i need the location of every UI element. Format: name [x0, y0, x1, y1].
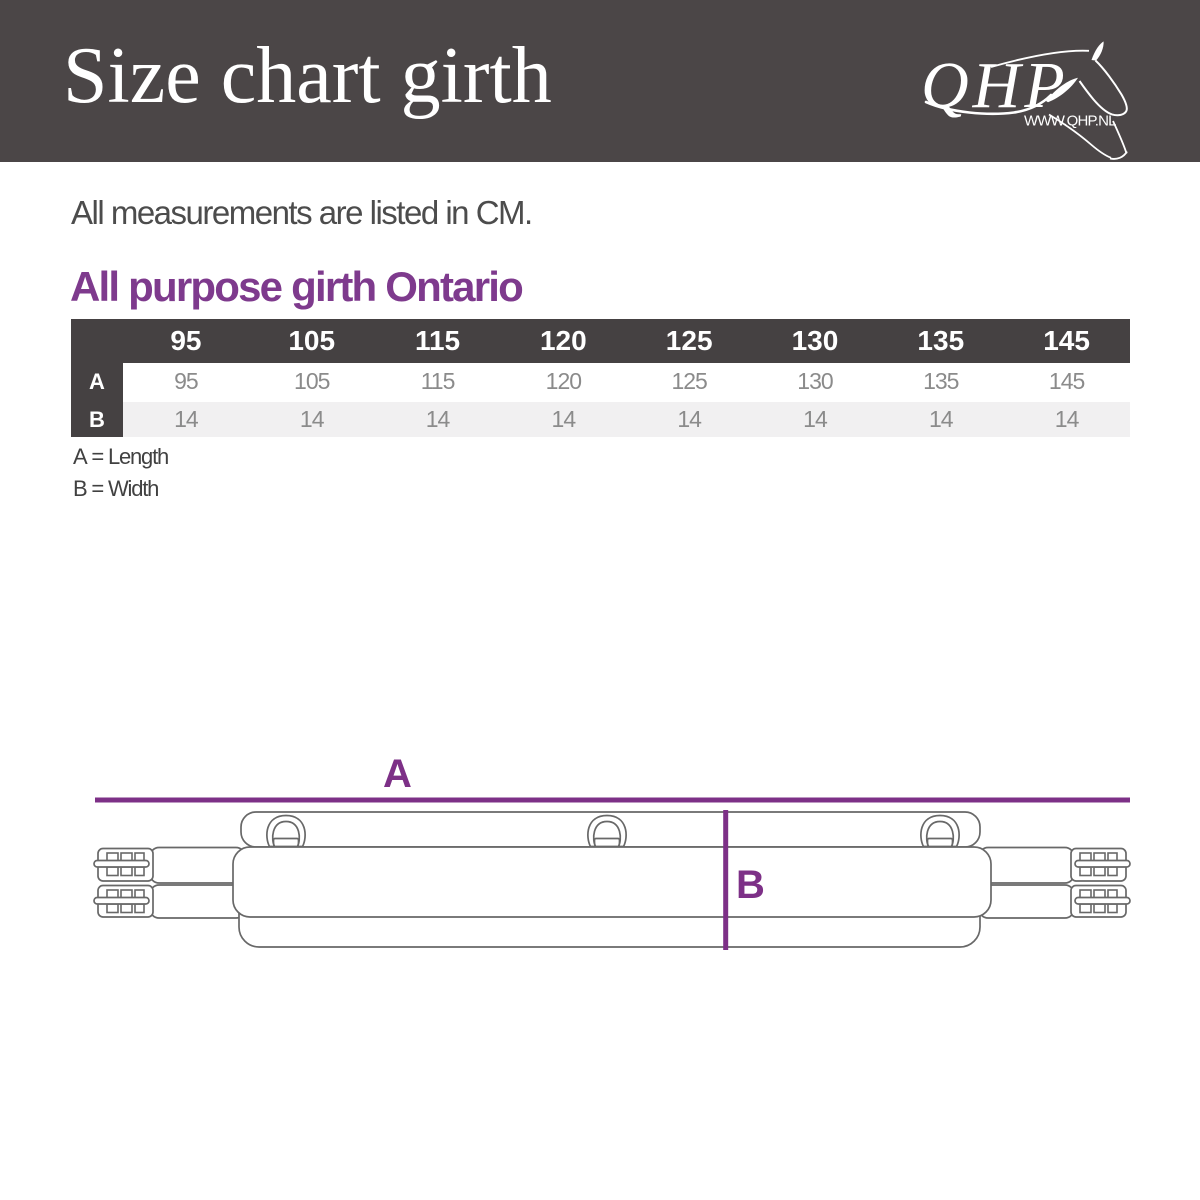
svg-text:B: B — [736, 863, 765, 907]
svg-text:QHP: QHP — [921, 49, 1069, 122]
svg-text:WWW.QHP.NL: WWW.QHP.NL — [1024, 113, 1116, 130]
svg-text:A: A — [383, 752, 412, 796]
